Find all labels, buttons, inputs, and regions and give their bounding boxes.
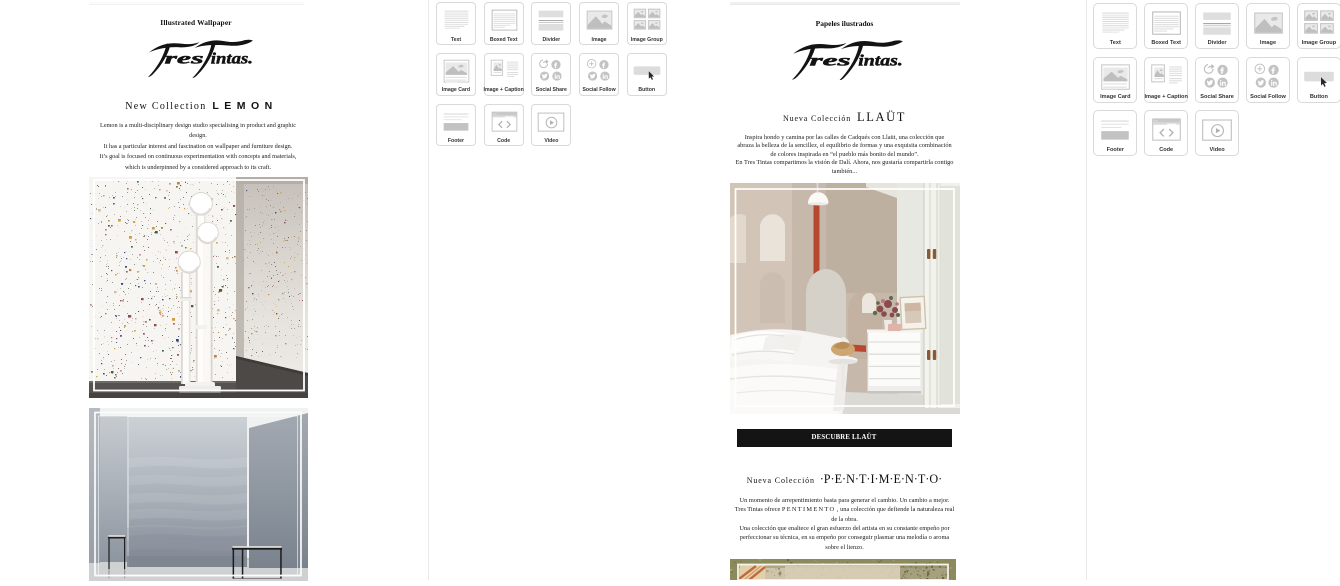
svg-text:intas.: intas.: [858, 51, 903, 70]
svg-text:intas.: intas.: [210, 50, 252, 67]
svg-text:res: res: [164, 50, 203, 67]
svg-text:res: res: [809, 51, 850, 70]
